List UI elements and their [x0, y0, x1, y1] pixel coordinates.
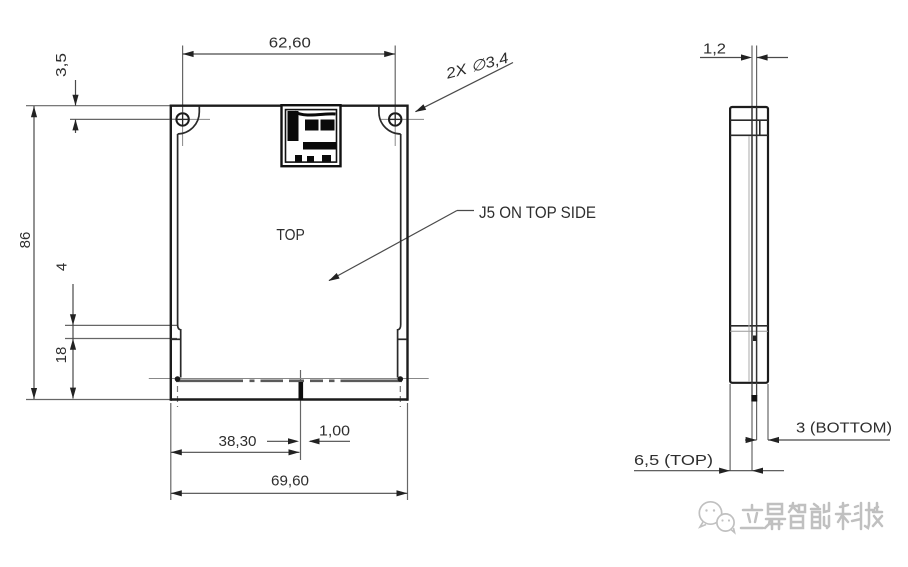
- svg-text:62,60: 62,60: [269, 35, 311, 52]
- svg-text:38,30: 38,30: [219, 433, 257, 450]
- svg-text:6,5 (TOP): 6,5 (TOP): [634, 452, 713, 469]
- svg-text:1,00: 1,00: [319, 423, 350, 440]
- svg-text:3,5: 3,5: [53, 53, 70, 77]
- svg-text:J5 ON TOP SIDE: J5 ON TOP SIDE: [479, 204, 596, 222]
- svg-text:86: 86: [17, 232, 34, 249]
- svg-text:3 (BOTTOM): 3 (BOTTOM): [796, 420, 892, 437]
- svg-text:18: 18: [53, 347, 70, 364]
- svg-text:4: 4: [54, 263, 71, 271]
- svg-text:1,2: 1,2: [703, 41, 726, 58]
- svg-text:TOP: TOP: [276, 227, 305, 244]
- svg-text:69,60: 69,60: [271, 473, 309, 490]
